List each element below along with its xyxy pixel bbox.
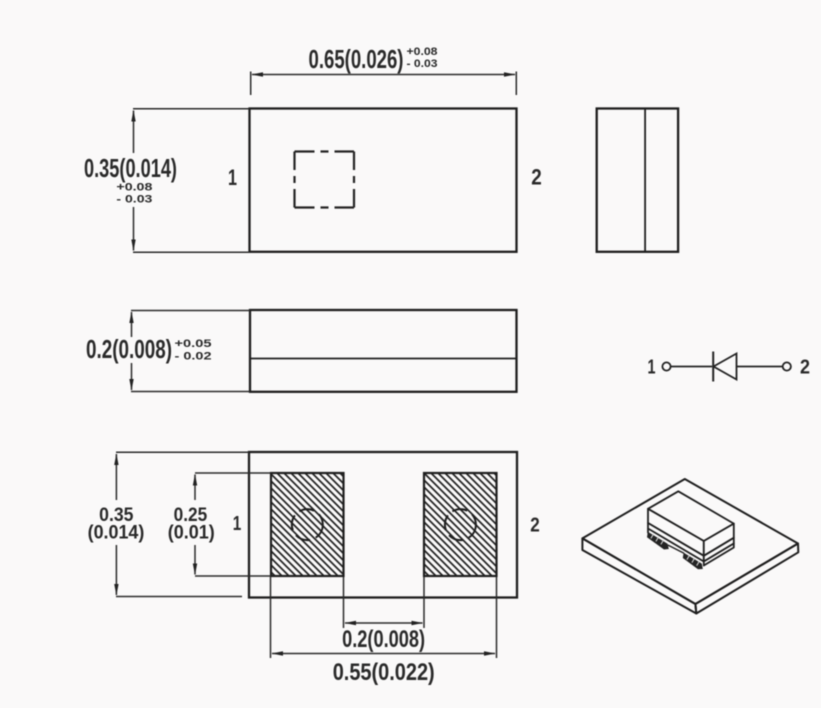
svg-text:(0.014): (0.014) [88,522,145,544]
svg-text:- 0.03: - 0.03 [407,58,438,70]
svg-text:+0.05: +0.05 [175,338,212,350]
svg-text:+0.08: +0.08 [116,182,152,194]
svg-text:+0.08: +0.08 [407,46,438,58]
svg-text:1: 1 [228,165,237,190]
svg-text:(0.01): (0.01) [168,522,215,544]
svg-text:2: 2 [531,165,542,190]
svg-text:- 0.03: - 0.03 [116,194,152,206]
svg-text:0.65(0.026): 0.65(0.026) [309,46,404,74]
svg-text:0.35(0.014): 0.35(0.014) [84,155,177,183]
svg-text:1: 1 [648,357,656,379]
svg-text:1: 1 [233,512,242,535]
svg-text:- 0.02: - 0.02 [175,351,212,363]
svg-text:2: 2 [800,357,810,379]
svg-text:0.2(0.008): 0.2(0.008) [342,626,425,653]
svg-text:0.55(0.022): 0.55(0.022) [333,659,435,686]
svg-text:0.2(0.008): 0.2(0.008) [86,336,172,364]
svg-text:2: 2 [530,514,540,537]
